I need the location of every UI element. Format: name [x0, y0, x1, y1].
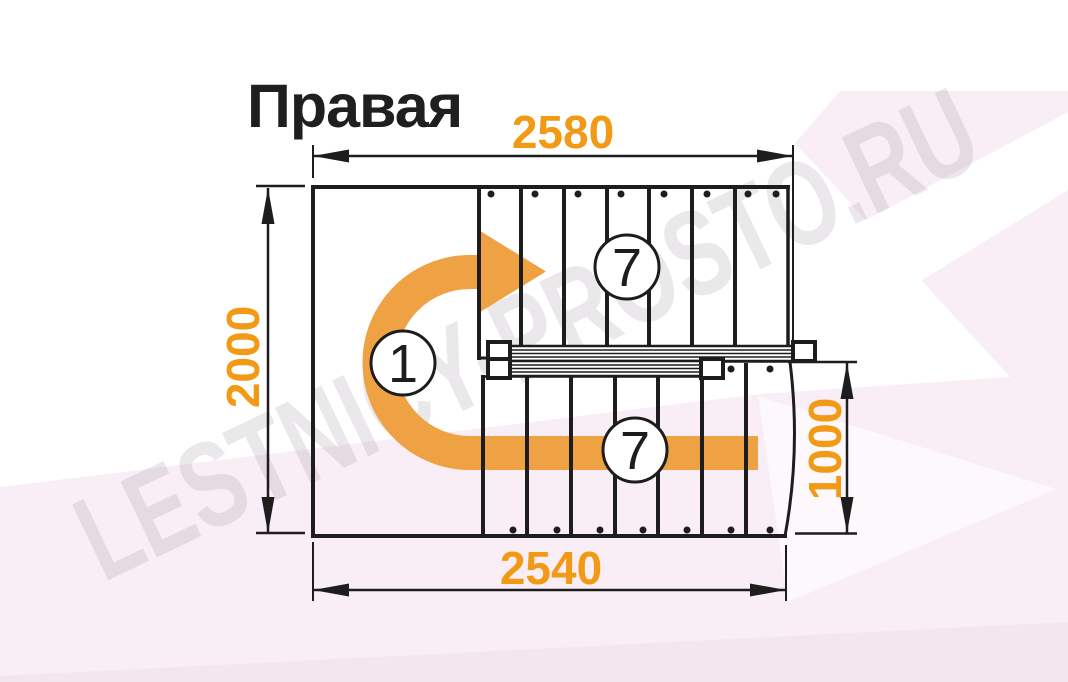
dimension-right-label: 1000: [799, 398, 851, 500]
staircase-plan-page: LESTNICY-PROSTO.RU: [0, 0, 1068, 682]
staircase-plan-drawing: LESTNICY-PROSTO.RU: [0, 0, 1068, 682]
start-step-label: 1: [388, 334, 418, 394]
stringer-cap-lower-left: [488, 359, 510, 378]
lower-flight-count-label: 7: [620, 421, 650, 481]
dimension-bottom-label: 2540: [500, 542, 602, 594]
dimension-left-label: 2000: [217, 306, 269, 408]
dimension-top-arrow-left-icon: [313, 150, 349, 163]
stringer-cap-lower-right: [701, 359, 723, 378]
dimension-left-arrow-up-icon: [262, 188, 275, 224]
upper-flight-count-label: 7: [612, 238, 642, 298]
page-title: Правая: [247, 72, 462, 140]
start-step-badge: 1: [371, 331, 435, 395]
middle-stringer-bars: [488, 342, 815, 378]
stringer-cap-upper-right: [793, 342, 815, 361]
dimension-top-label: 2580: [512, 106, 614, 158]
lower-flight-count-badge: 7: [603, 418, 667, 482]
upper-flight-count-badge: 7: [595, 235, 659, 299]
dimension-right-arrow-up-icon: [841, 363, 854, 399]
